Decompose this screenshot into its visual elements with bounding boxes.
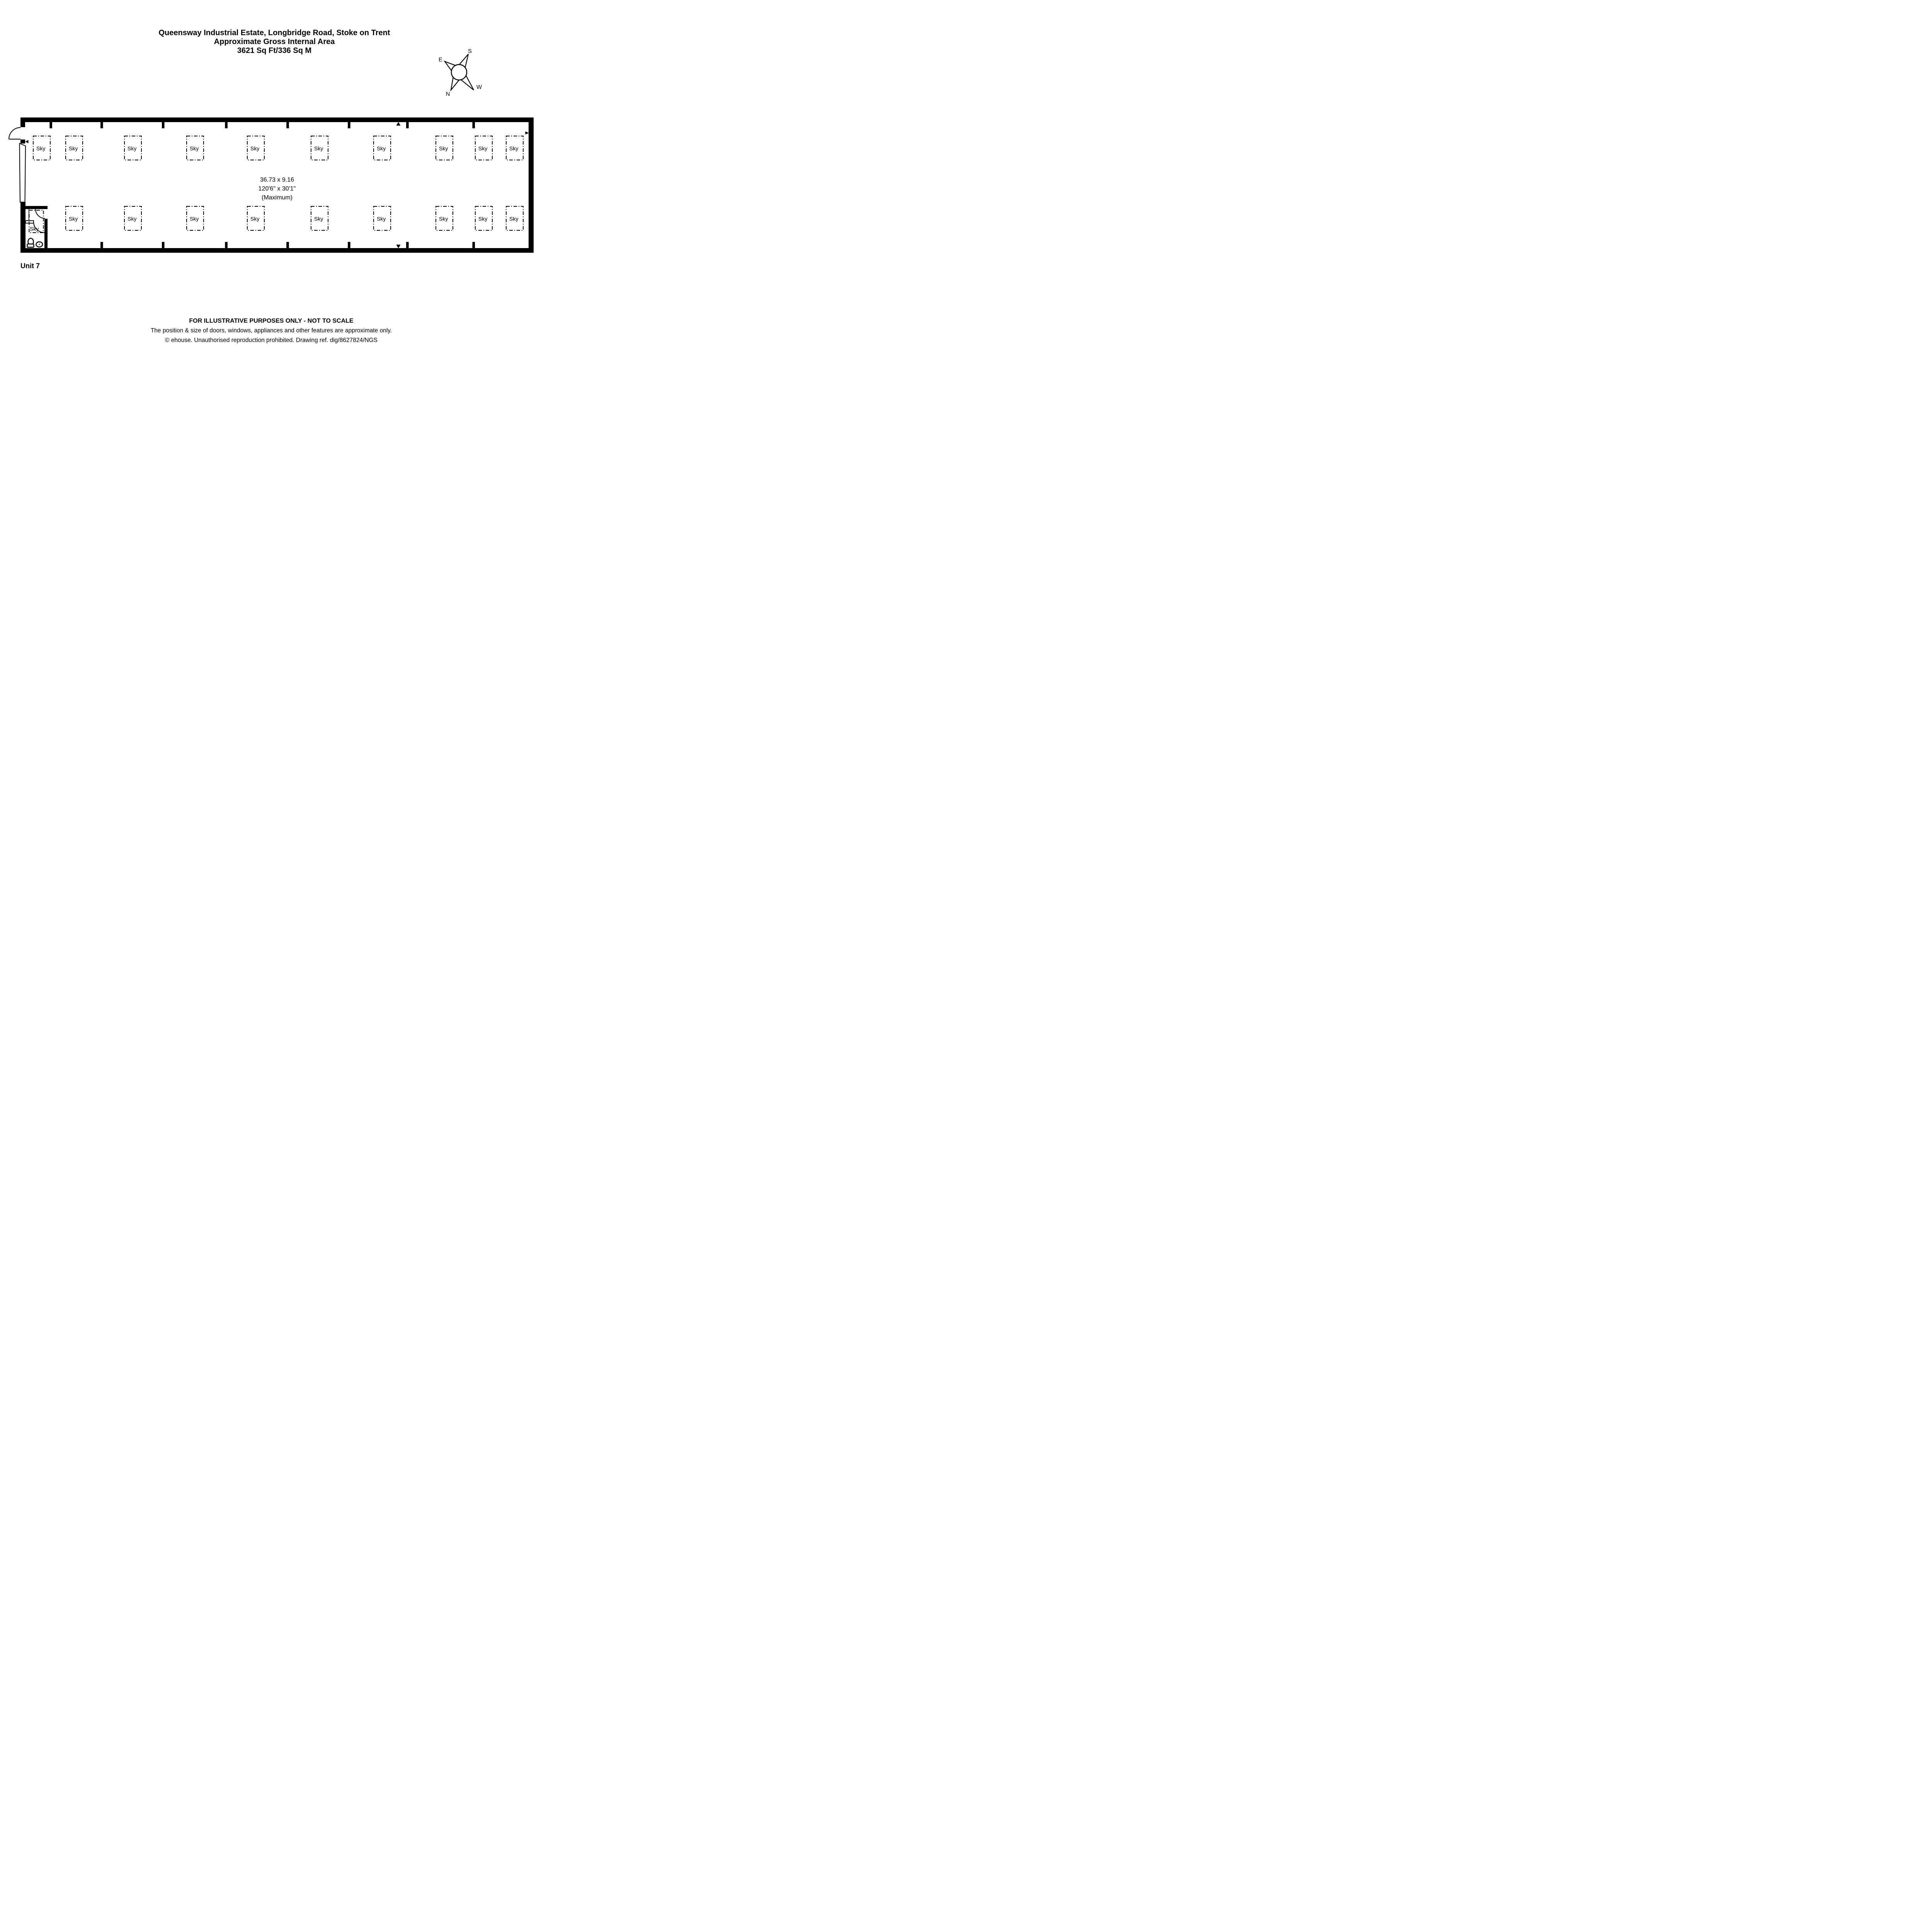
wall-bottom — [20, 248, 534, 253]
dimension-imperial: 120'6" x 30'1" — [259, 185, 296, 192]
room-dimensions: 36.73 x 9.16 120'6" x 30'1" (Maximum) — [259, 177, 296, 201]
skylight-label: Sky — [128, 145, 136, 151]
skylight-label: Sky — [69, 216, 78, 222]
skylight-label: Sky — [250, 216, 259, 222]
wall-stub — [406, 122, 409, 128]
top-wall-stubs — [49, 122, 475, 128]
arrow-up-icon — [396, 122, 401, 126]
skylight-label: Sky — [439, 145, 448, 151]
wall-stub — [162, 242, 165, 248]
skylight-label: Sky — [30, 226, 39, 232]
unit-label: Unit 7 — [20, 262, 40, 270]
skylight-label: Sky — [377, 145, 386, 151]
compass-circle — [451, 65, 467, 80]
wall-stub — [286, 122, 289, 128]
compass-label-north: N — [446, 91, 450, 97]
skylight-label: Sky — [439, 216, 448, 222]
disclaimer-line2: The position & size of doors, windows, a… — [151, 327, 392, 334]
skylight-label: Sky — [36, 145, 45, 151]
page-area: 3621 Sq Ft/336 Sq M — [237, 46, 311, 55]
building-walls — [20, 117, 534, 253]
skylight-label: Sky — [314, 216, 323, 222]
skylight-row-top: Sky Sky Sky Sky Sky Sky Sky Sky Sky Sky — [33, 136, 523, 160]
wc-wall-top — [24, 206, 48, 209]
arrow-left-icon — [25, 140, 29, 143]
floorplan-page: Queensway Industrial Estate, Longbridge … — [0, 0, 543, 383]
wall-stub — [225, 242, 228, 248]
wall-stub — [225, 122, 228, 128]
disclaimer-block: FOR ILLUSTRATIVE PURPOSES ONLY - NOT TO … — [151, 318, 392, 344]
skylight-label: Sky — [478, 216, 487, 222]
wall-top — [20, 117, 534, 122]
skylight-label: Sky — [190, 145, 199, 151]
door-post — [20, 140, 25, 143]
wc-wall-right — [44, 219, 48, 248]
wall-top-left-corner — [20, 117, 25, 127]
wall-stub — [49, 122, 52, 128]
compass-label-east: E — [439, 56, 442, 63]
skylight-label: Sky — [377, 216, 386, 222]
dimension-metric: 36.73 x 9.16 — [260, 177, 294, 183]
wall-stub — [100, 122, 103, 128]
wc-shelf — [26, 221, 34, 223]
disclaimer-line3: © ehouse. Unauthorised reproduction proh… — [165, 337, 378, 344]
wall-stub — [348, 122, 350, 128]
skylight-label: Sky — [509, 145, 518, 151]
compass-rose: S E W N — [439, 48, 482, 97]
arrow-down-icon — [396, 245, 401, 248]
wall-stub — [286, 242, 289, 248]
wall-stub — [406, 242, 409, 248]
arrow-right-icon — [526, 131, 529, 134]
wall-stub — [100, 242, 103, 248]
skylight-label: Sky — [190, 216, 199, 222]
entrance-door — [9, 128, 26, 202]
skylight-label: Sky — [509, 216, 518, 222]
door-leaf — [20, 143, 26, 202]
skylight-label: Sky — [69, 145, 78, 151]
page-title: Queensway Industrial Estate, Longbridge … — [159, 29, 390, 37]
disclaimer-line1: FOR ILLUSTRATIVE PURPOSES ONLY - NOT TO … — [189, 318, 354, 324]
wall-right — [529, 117, 534, 253]
skylight-label: Sky — [314, 145, 323, 151]
door-swing-arc — [9, 128, 20, 139]
title-block: Queensway Industrial Estate, Longbridge … — [159, 29, 390, 55]
toilet-cistern-icon — [27, 244, 34, 247]
dimension-qualifier: (Maximum) — [262, 194, 293, 201]
wall-stub — [162, 122, 165, 128]
bottom-wall-stubs — [100, 242, 475, 248]
compass-label-south: S — [468, 48, 472, 54]
wall-stub — [348, 242, 350, 248]
compass-label-west: W — [476, 84, 482, 90]
skylight-label: Sky — [478, 145, 487, 151]
wall-stub — [473, 242, 475, 248]
skylight-label: Sky — [128, 216, 136, 222]
skylight-row-bottom: Sky Sky Sky Sky Sky Sky Sky Sky Sky — [66, 206, 523, 230]
skylight-label: Sky — [250, 145, 259, 151]
page-subtitle: Approximate Gross Internal Area — [214, 37, 335, 46]
wall-left — [20, 202, 26, 253]
sink-drain-icon — [39, 244, 40, 245]
wall-stub — [473, 122, 475, 128]
floorplan-drawing: Queensway Industrial Estate, Longbridge … — [0, 0, 543, 383]
